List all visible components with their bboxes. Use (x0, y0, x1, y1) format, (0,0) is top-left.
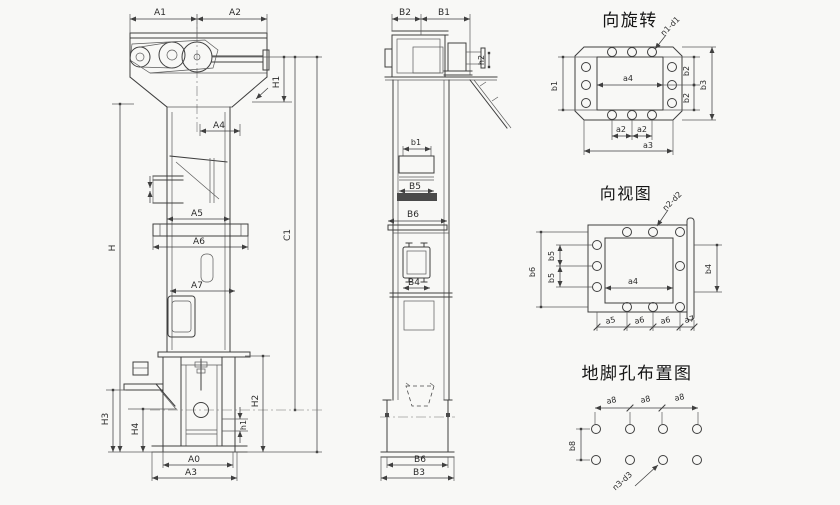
dim-label-h2-side: h2 (477, 55, 486, 65)
dim-label-a2: A2 (229, 8, 241, 18)
bearing-pedestal (448, 43, 466, 71)
dim-label-v2-a6r: a6 (660, 315, 672, 326)
dim-label-h3: H3 (101, 413, 111, 426)
dim-label-b1-top: B1 (438, 8, 450, 18)
dim-label-v3-a8-2: a8 (640, 394, 652, 405)
bolt-holes-2 (593, 228, 685, 312)
view-title-direction: 向视图 (600, 184, 653, 203)
view-title-rotation: 向旋转 (602, 11, 658, 31)
boot-section (124, 357, 322, 452)
inspection-slot (201, 254, 213, 282)
angle-plate (687, 218, 694, 320)
belt-band (397, 193, 437, 201)
dim-label-v2-a6l: a6 (634, 315, 646, 326)
dim-label-b6-bottom: B6 (414, 455, 426, 465)
bucket-outline (406, 386, 434, 406)
dim-label-v2-b6: b6 (528, 267, 537, 277)
dim-label-a3-front: A3 (185, 468, 197, 478)
internal-chute (150, 156, 227, 203)
dim-label-b5: B5 (409, 182, 421, 192)
dim-label-v1-b1: b1 (550, 81, 559, 91)
dim-label-a0: A0 (188, 455, 200, 465)
dim-label-v1-a4: a4 (623, 74, 633, 83)
dim-label-v2-a5: a5 (605, 315, 617, 326)
dim-label-v1-b2u: b2 (682, 66, 691, 76)
direction-flange-view: 向视图 n2-d2 b6 b5 b5 a4 b4 (528, 184, 722, 331)
dim-label-h1-head: H1 (272, 76, 282, 89)
dim-label-v1-a3: a3 (643, 141, 653, 150)
hole-note-n2d2: n2-d2 (661, 190, 684, 213)
bolt-holes-1 (582, 48, 677, 120)
view-title-anchor: 地脚孔布置图 (582, 364, 693, 384)
dim-label-v2-a7: a7 (684, 314, 696, 325)
dim-label-a5: A5 (191, 209, 203, 219)
dim-label-v2-a4: a4 (628, 277, 638, 286)
dim-label-a7: A7 (191, 281, 203, 291)
rotation-flange-view: 向旋转 n1-d1 b1 a4 b2 b2 b3 (550, 11, 716, 155)
dim-label-h4: H4 (131, 422, 141, 435)
anchor-holes (592, 425, 702, 465)
discharge-flow-arrow (256, 88, 268, 99)
drive-unit (130, 40, 269, 73)
dim-label-v2-b5u: b5 (547, 251, 556, 261)
anchor-hole-view: 地脚孔布置图 a8 a8 a8 b8 n3-d3 (568, 364, 702, 492)
dim-label-a6: A6 (193, 237, 205, 247)
technical-drawing-canvas: A1 A2 H1 C1 (0, 0, 840, 505)
hole-note-n3d3: n3-d3 (611, 470, 634, 492)
dim-label-v3-a8-1: a8 (606, 395, 618, 406)
dim-label-v3-a8-3: a8 (674, 392, 686, 403)
dim-label-b3: B3 (413, 468, 425, 478)
dim-label-v1-b3: b3 (699, 80, 708, 90)
dim-label-b2-top: B2 (399, 8, 411, 18)
dim-label-b4: B4 (408, 278, 420, 288)
dim-label-v1-a2r: a2 (637, 125, 647, 134)
dim-label-v2-b4: b4 (704, 264, 713, 274)
hole-leader-3 (635, 465, 658, 486)
side-view: B2 B1 h2 b1 (380, 8, 511, 481)
dim-label-h-small: h1 (239, 420, 248, 430)
drawing-sheet: A1 A2 H1 C1 (0, 0, 840, 505)
dim-label-v3-b8: b8 (568, 441, 577, 451)
dim-label-v2-b5l: b5 (547, 273, 556, 283)
dim-label-h2-front: H2 (251, 395, 261, 408)
hole-note-n1d1: n1-d1 (659, 15, 682, 38)
dim-label-h: H (108, 245, 118, 252)
dim-label-b6: B6 (407, 210, 419, 220)
dim-label-a1: A1 (154, 8, 166, 18)
dim-label-c1: C1 (283, 229, 293, 241)
door-side-view (403, 243, 430, 282)
dim-label-b1-small: b1 (411, 138, 421, 147)
dim-label-a4: A4 (213, 121, 225, 131)
hole-leader-2 (657, 210, 668, 226)
dim-label-v1-a2l: a2 (616, 125, 626, 134)
front-view: A1 A2 H1 C1 (101, 8, 322, 481)
flange-outline-1 (575, 47, 682, 120)
support-strut (470, 80, 507, 128)
dim-label-v1-b2l: b2 (682, 93, 691, 103)
